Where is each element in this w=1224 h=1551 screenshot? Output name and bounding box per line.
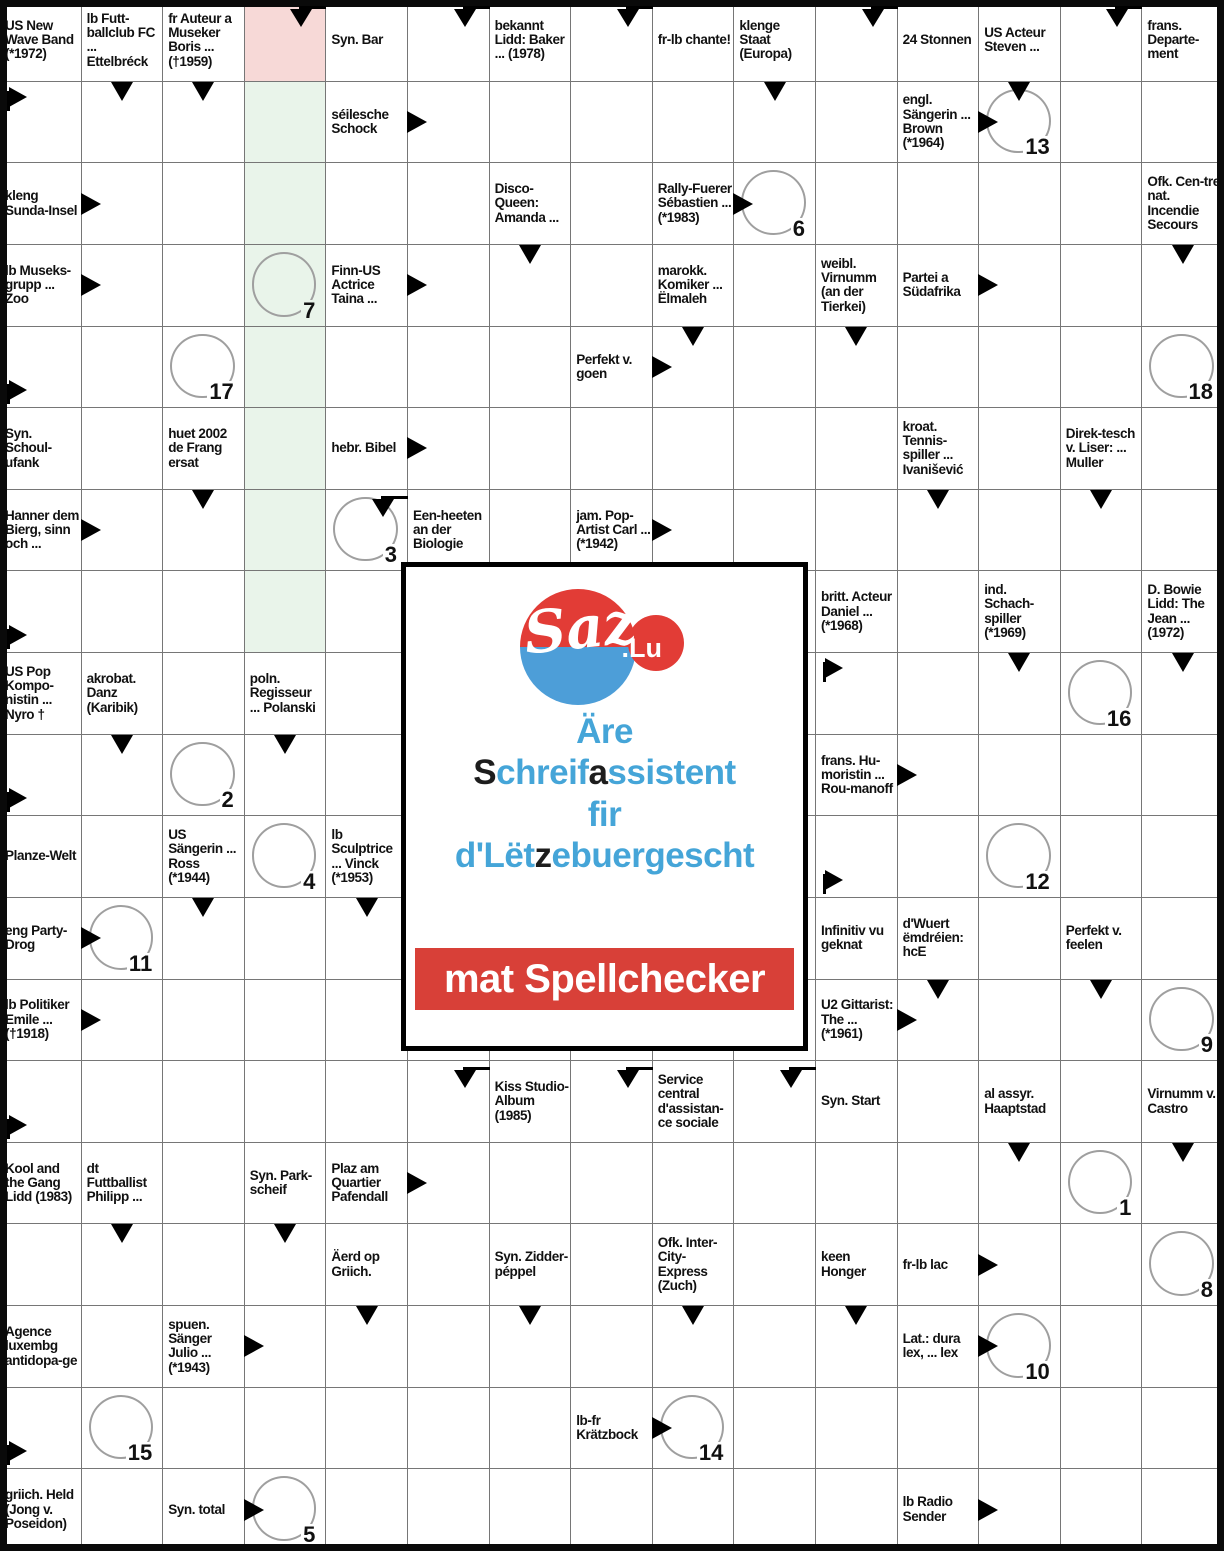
bent-down-arrow-icon (381, 496, 407, 526)
down-arrow-icon (192, 490, 214, 509)
ad-text-segment: ebuergescht (552, 836, 755, 875)
right-arrow-icon (407, 437, 427, 459)
down-arrow-icon (1090, 980, 1112, 999)
right-arrow-icon (897, 764, 917, 786)
right-arrow-icon (81, 1009, 101, 1031)
right-arrow-icon (978, 111, 998, 133)
down-arrow-icon (192, 898, 214, 917)
down-arrow-icon (1008, 82, 1030, 101)
bent-down-arrow-icon (789, 1067, 815, 1097)
down-arrow-icon (1090, 490, 1112, 509)
bent-down-arrow-icon (871, 6, 897, 36)
down-arrow-icon (111, 735, 133, 754)
ad-line-1: Äre (406, 711, 803, 752)
ad-line-3: fir (406, 794, 803, 835)
down-arrow-icon (274, 735, 296, 754)
right-arrow-icon (407, 274, 427, 296)
down-arrow-icon (274, 1224, 296, 1243)
right-arrow-icon (244, 1335, 264, 1357)
right-arrow-icon (978, 1254, 998, 1276)
right-arrow-icon (652, 1417, 672, 1439)
down-arrow-icon (111, 1224, 133, 1243)
right-arrow-icon (407, 111, 427, 133)
ad-line-2: Schreifassistent (406, 752, 803, 793)
saz-ad-box[interactable]: Saz .Lu Äre Schreifassistent fir d'Lëtze… (401, 562, 808, 1051)
right-arrow-icon (244, 1499, 264, 1521)
ad-text-segment: a (588, 753, 607, 792)
right-arrow-icon (652, 356, 672, 378)
down-arrow-icon (682, 1306, 704, 1325)
flag-arrow-icon (7, 380, 33, 404)
ad-text-segment: S (473, 753, 496, 792)
ad-text-segment: ssistent (607, 753, 735, 792)
down-arrow-icon (1008, 653, 1030, 672)
down-arrow-icon (519, 245, 541, 264)
down-arrow-icon (1172, 1143, 1194, 1162)
ad-line-4: d'Lëtzebuergescht (406, 835, 803, 876)
flag-arrow-icon (7, 788, 33, 812)
saz-logo-lu-text: .Lu (622, 633, 663, 664)
saz-logo-text: Saz (521, 593, 636, 662)
bent-down-arrow-icon (299, 6, 325, 36)
down-arrow-icon (1172, 653, 1194, 672)
right-arrow-icon (407, 1172, 427, 1194)
right-arrow-icon (652, 519, 672, 541)
down-arrow-icon (111, 82, 133, 101)
down-arrow-icon (356, 1306, 378, 1325)
bent-down-arrow-icon (626, 6, 652, 36)
down-arrow-icon (927, 980, 949, 999)
bent-down-arrow-icon (463, 1067, 489, 1097)
right-arrow-icon (978, 1499, 998, 1521)
right-arrow-icon (978, 1335, 998, 1357)
down-arrow-icon (845, 327, 867, 346)
bent-down-arrow-icon (463, 6, 489, 36)
down-arrow-icon (845, 1306, 867, 1325)
ad-text-segment: d'Lët (455, 836, 535, 875)
ad-spellchecker-banner: mat Spellchecker (415, 948, 794, 1010)
ad-text-segment: z (535, 836, 552, 875)
down-arrow-icon (682, 327, 704, 346)
down-arrow-icon (764, 82, 786, 101)
flag-arrow-icon (823, 658, 849, 682)
down-arrow-icon (927, 490, 949, 509)
right-arrow-icon (733, 193, 753, 215)
flag-arrow-icon (823, 870, 849, 894)
right-arrow-icon (978, 274, 998, 296)
down-arrow-icon (1172, 245, 1194, 264)
right-arrow-icon (81, 519, 101, 541)
flag-arrow-icon (7, 625, 33, 649)
saz-logo: Saz .Lu (510, 581, 700, 711)
ad-text-segment: chreif (496, 753, 588, 792)
bent-down-arrow-icon (1115, 6, 1141, 36)
flag-arrow-icon (7, 1441, 33, 1465)
flag-arrow-icon (7, 87, 33, 111)
right-arrow-icon (81, 274, 101, 296)
down-arrow-icon (519, 1306, 541, 1325)
right-arrow-icon (897, 1009, 917, 1031)
crossword-page: US New Wave Band (*1972)lb Futt-ballclub… (0, 0, 1224, 1551)
down-arrow-icon (1008, 1143, 1030, 1162)
flag-arrow-icon (7, 1115, 33, 1139)
down-arrow-icon (192, 82, 214, 101)
right-arrow-icon (81, 927, 101, 949)
right-arrow-icon (81, 193, 101, 215)
down-arrow-icon (356, 898, 378, 917)
bent-down-arrow-icon (626, 1067, 652, 1097)
